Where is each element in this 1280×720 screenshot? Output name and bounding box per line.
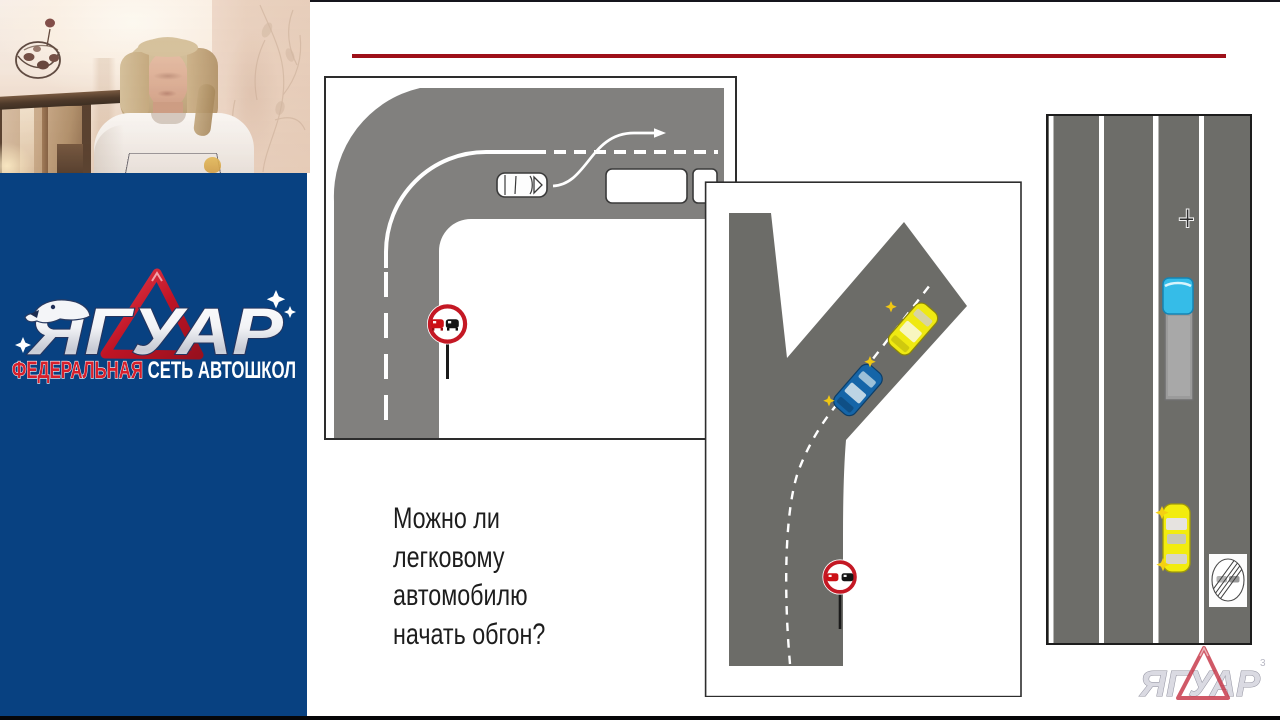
svg-text:3: 3 [1260,658,1266,669]
svg-text:ФЕДЕРАЛЬНАЯ СЕТЬ АВТОШКОЛ: ФЕДЕРАЛЬНАЯ СЕТЬ АВТОШКОЛ [12,357,296,384]
